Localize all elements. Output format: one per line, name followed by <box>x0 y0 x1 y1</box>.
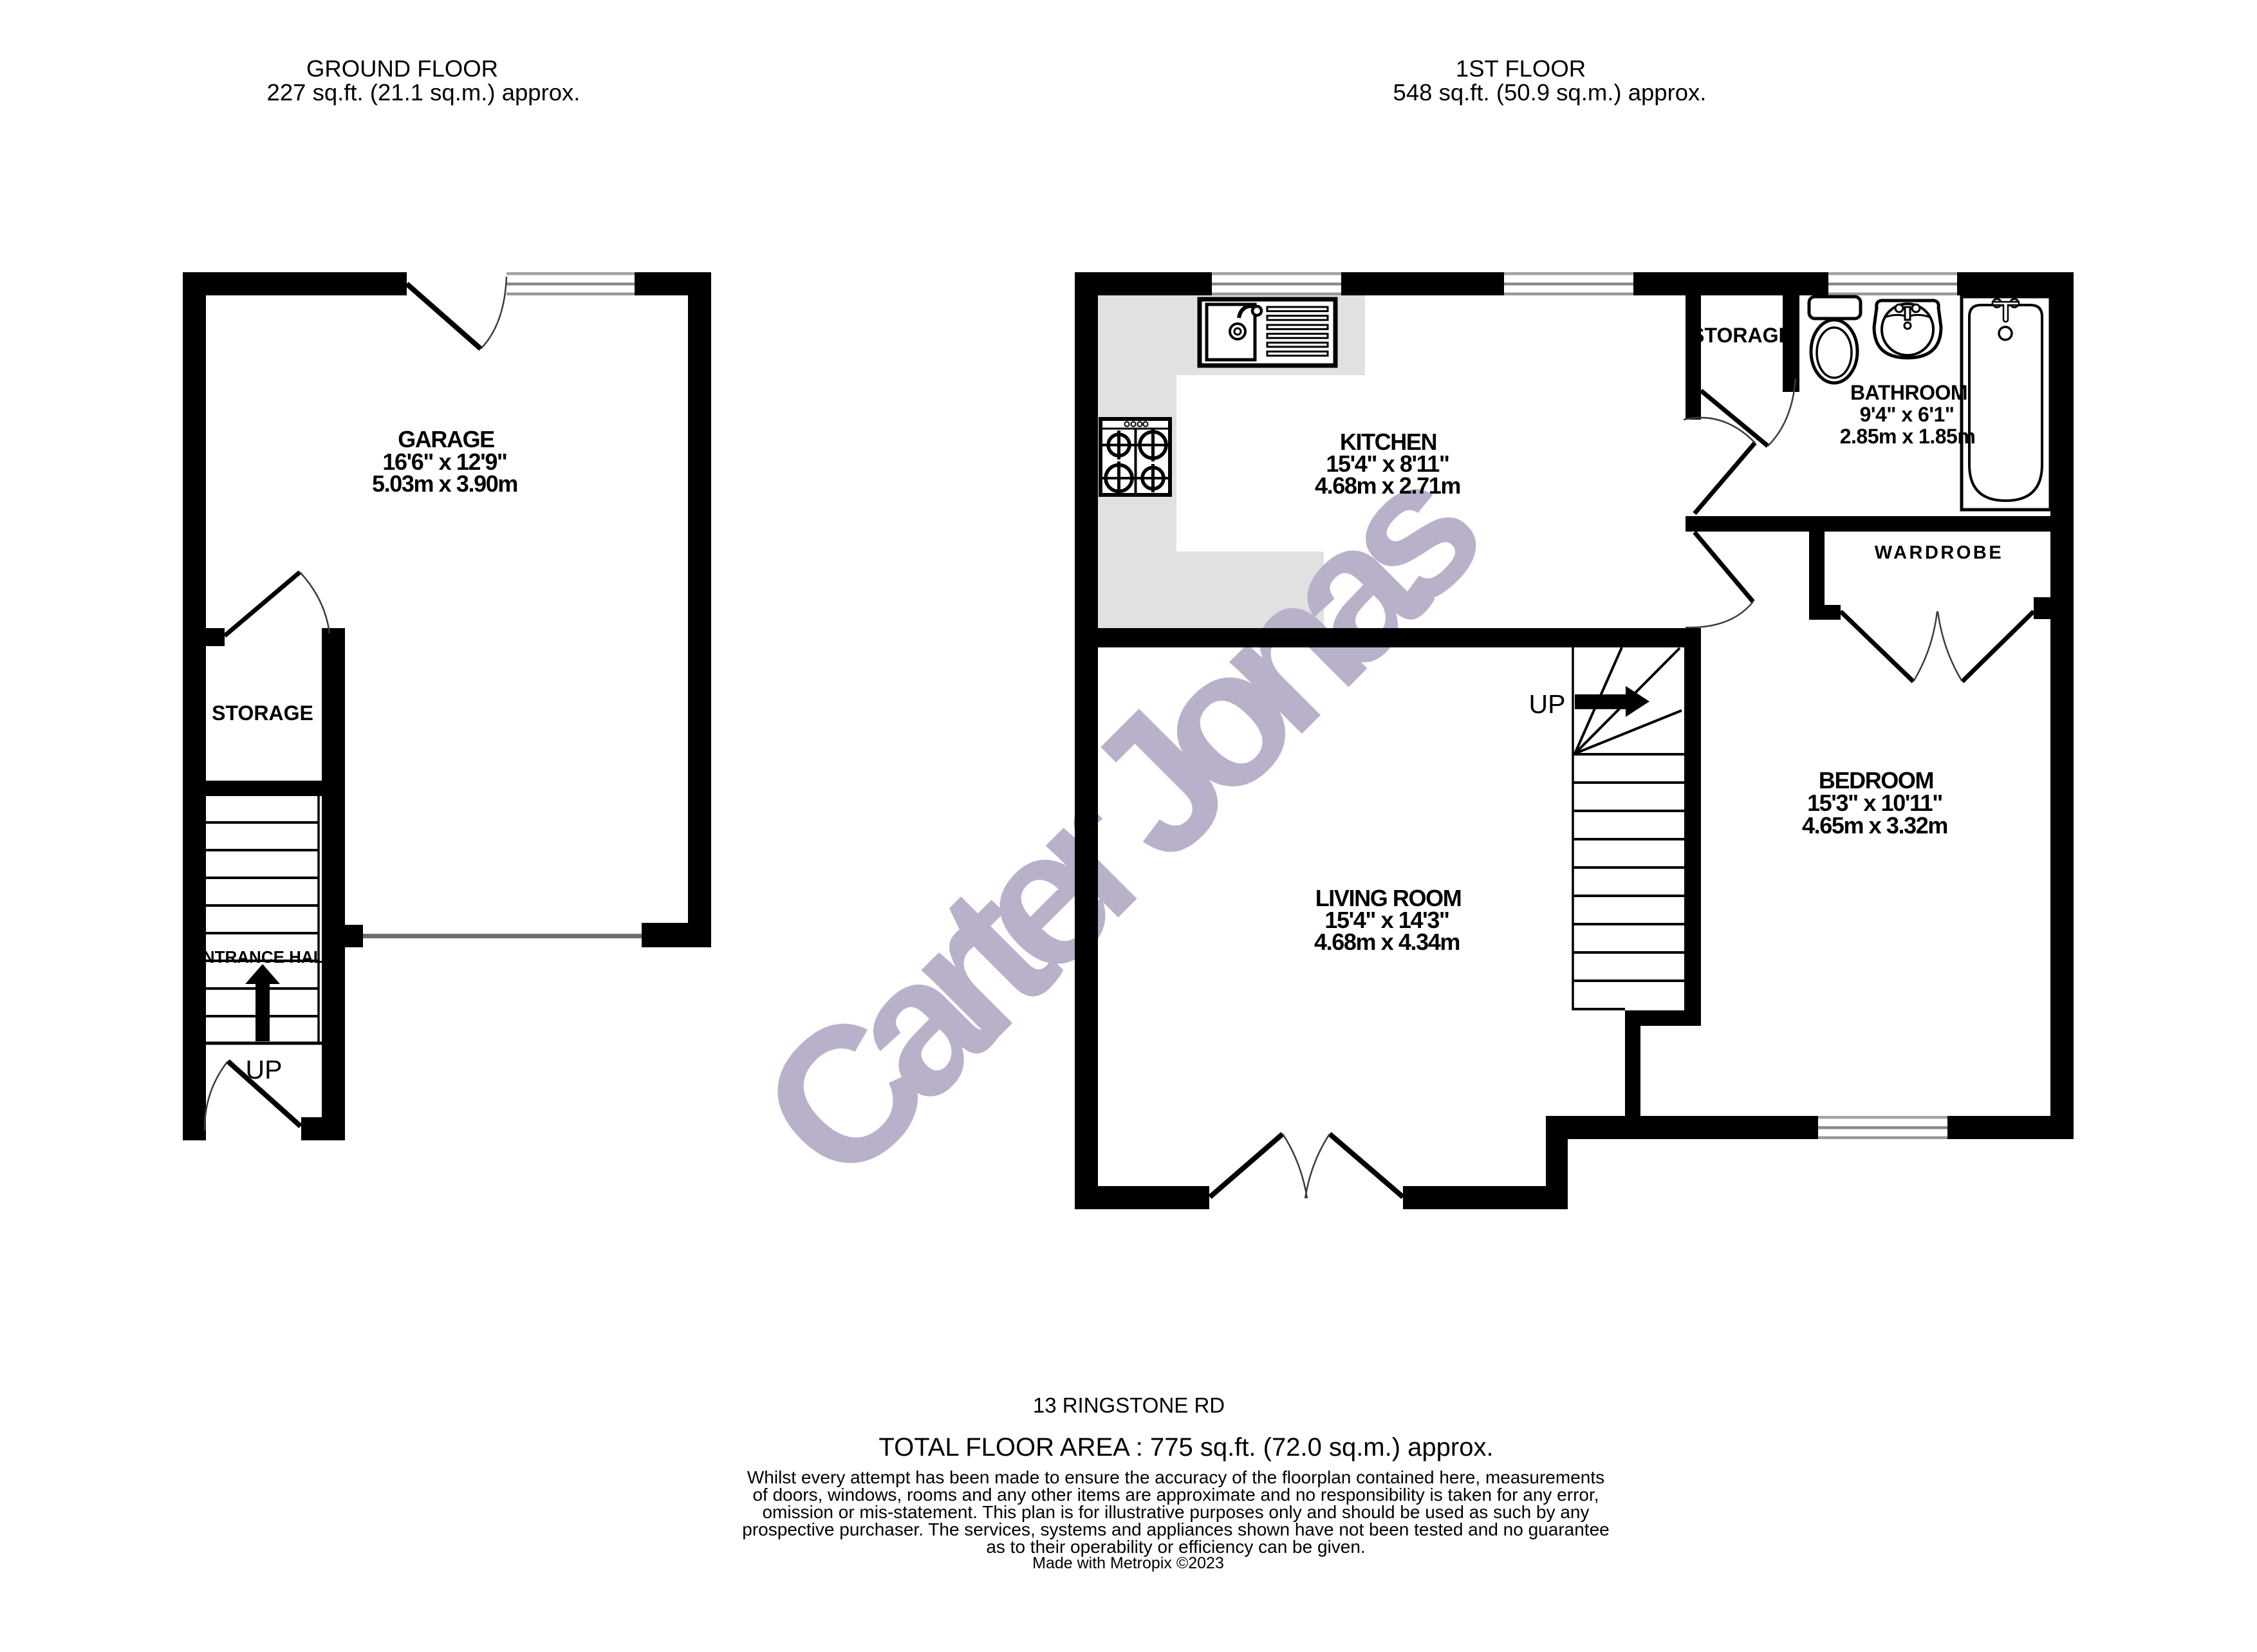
svg-text:9'4" x 6'1": 9'4" x 6'1" <box>1860 403 1955 426</box>
svg-text:227 sq.ft. (21.1 sq.m.) approx: 227 sq.ft. (21.1 sq.m.) approx. <box>267 79 581 106</box>
svg-text:TOTAL FLOOR AREA : 775 sq.ft.: TOTAL FLOOR AREA : 775 sq.ft. (72.0 sq.m… <box>878 1433 1493 1462</box>
svg-text:1ST FLOOR: 1ST FLOOR <box>1456 55 1586 82</box>
svg-text:4.65m x 3.32m: 4.65m x 3.32m <box>1802 812 1947 839</box>
svg-text:Made with Metropix ©2023: Made with Metropix ©2023 <box>1032 1554 1224 1572</box>
svg-text:UP: UP <box>246 1055 283 1084</box>
svg-text:ENTRANCE HALL: ENTRANCE HALL <box>192 947 334 967</box>
svg-text:4.68m x 2.71m: 4.68m x 2.71m <box>1315 472 1460 499</box>
svg-text:UP: UP <box>1529 689 1566 719</box>
svg-text:5.03m x 3.90m: 5.03m x 3.90m <box>372 470 517 497</box>
svg-text:STORAGE: STORAGE <box>1691 324 1792 347</box>
svg-text:BATHROOM: BATHROOM <box>1850 381 1967 404</box>
svg-text:13 RINGSTONE RD: 13 RINGSTONE RD <box>1033 1393 1225 1417</box>
svg-text:STORAGE: STORAGE <box>212 701 313 725</box>
svg-text:4.68m x 4.34m: 4.68m x 4.34m <box>1314 929 1460 955</box>
svg-text:548 sq.ft. (50.9 sq.m.) approx: 548 sq.ft. (50.9 sq.m.) approx. <box>1393 79 1707 106</box>
svg-text:2.85m x 1.85m: 2.85m x 1.85m <box>1840 425 1976 448</box>
svg-text:GROUND FLOOR: GROUND FLOOR <box>306 55 498 82</box>
svg-text:WARDROBE: WARDROBE <box>1875 543 2003 563</box>
